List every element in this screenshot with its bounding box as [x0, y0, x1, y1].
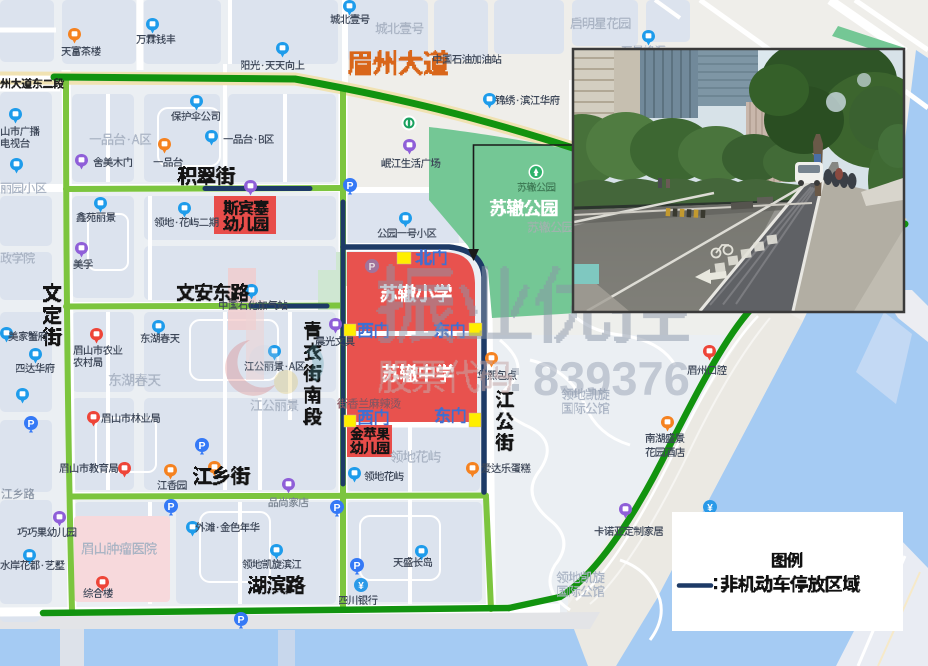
svg-text:P: P — [353, 560, 360, 572]
svg-text:P: P — [237, 614, 244, 626]
svg-text:P: P — [369, 262, 376, 273]
svg-text:839376: 839376 — [533, 352, 690, 405]
svg-text:P: P — [198, 440, 205, 452]
svg-text:¥: ¥ — [358, 581, 364, 592]
svg-text:P: P — [167, 501, 174, 513]
svg-text:P: P — [27, 418, 34, 430]
svg-text:P: P — [333, 502, 340, 514]
svg-text:P: P — [346, 180, 353, 192]
